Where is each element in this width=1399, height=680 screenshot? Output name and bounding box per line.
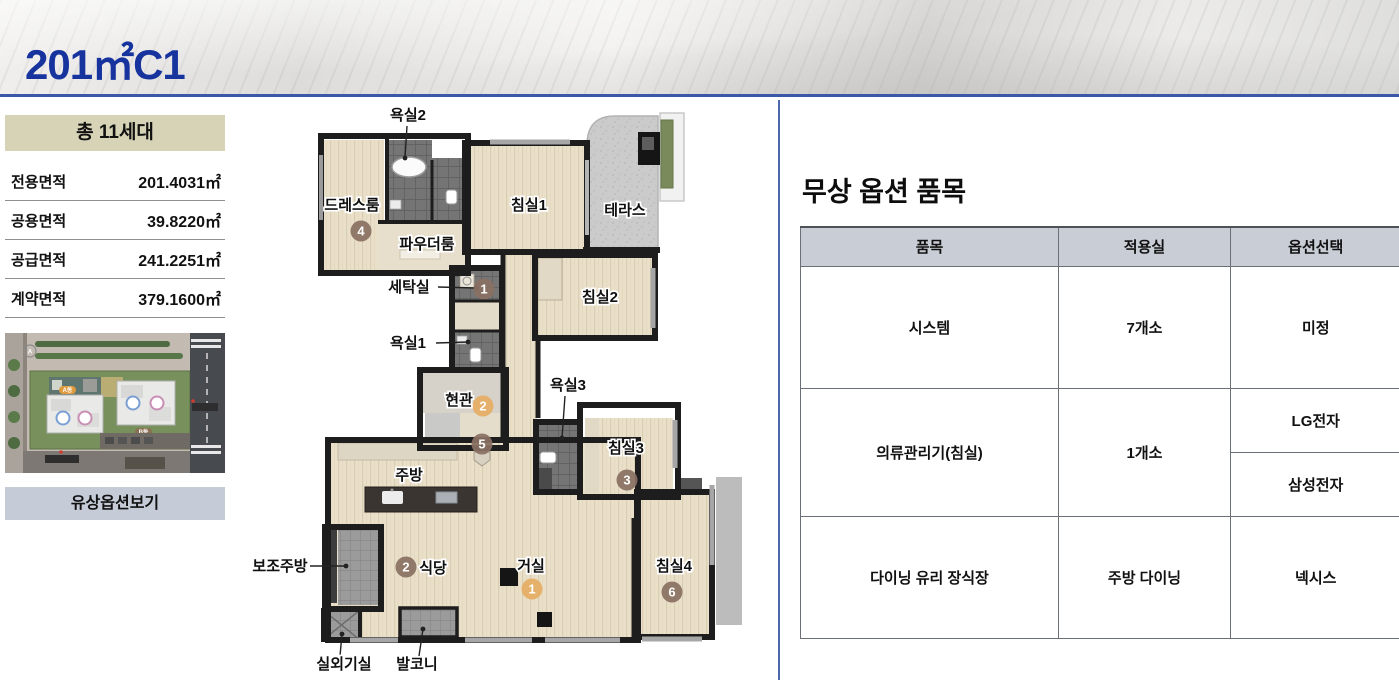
outer-balcony-strip [716,477,742,625]
room-label: 발코니 [396,656,437,673]
room-label: 실외기실 [316,655,371,673]
choice-cell: 넥시스 [1231,516,1399,638]
room-label: 파우더룸 [399,236,454,253]
room-label: 주방 [395,466,423,484]
area-value: 379.1600㎡ [138,286,221,310]
choice-cell: LG전자 [1231,388,1399,452]
choice-cell: 미정 [1231,266,1399,388]
choice-cell: 삼성전자 [1231,452,1399,516]
area-table: 전용면적 201.4031㎡ 공용면적 39.8220㎡ 공급면적 241.22… [5,162,225,318]
content: 총 11세대 전용면적 201.4031㎡ 공용면적 39.8220㎡ 공급면적… [0,100,1399,680]
site-plan-image: A [5,333,225,473]
area-row: 공급면적 241.2251㎡ [5,240,225,279]
room-cell: 1개소 [1059,388,1231,516]
options-table: 품목 적용실 옵션선택 시스템 7개소 미정 의류관리기(침실) 1개소 LG전… [800,226,1399,639]
floor-plan: 14252136 욕실2드레스룸파우더룸침실1테라스세탁실침실2욕실1현관욕실3… [250,100,780,680]
svg-text:6: 6 [668,585,675,600]
utility-floor [455,301,500,331]
area-row: 계약면적 379.1600㎡ [5,279,225,318]
sidebar: 총 11세대 전용면적 201.4031㎡ 공용면적 39.8220㎡ 공급면적… [5,100,225,680]
room-label: 테라스 [604,202,646,219]
room-label: 욕실1 [390,335,426,352]
room-label: 식당 [419,559,447,577]
area-value: 201.4031㎡ [138,169,221,193]
room-label: 침실2 [582,289,618,306]
room-label: 침실4 [656,558,693,575]
area-label: 계약면적 [11,288,66,309]
area-label: 공용면적 [11,210,66,231]
svg-text:1: 1 [528,582,535,597]
bath3-toilet [540,452,556,463]
col-room: 적용실 [1059,227,1231,266]
paid-options-button[interactable]: 유상옵션보기 [5,487,225,520]
site-plan-marker-a: A [28,350,33,356]
wc2-toilet [446,190,457,204]
bath1-toilet [470,348,481,362]
living-pillar [500,568,518,586]
kitchen-sink [382,491,403,504]
table-row: 다이닝 유리 장식장 주방 다이닝 넥시스 [801,516,1399,638]
page: 201㎡C1 총 11세대 전용면적 201.4031㎡ 공용면적 39.822… [0,0,1399,680]
bath2-floor [387,140,432,222]
page-title: 201㎡C1 [25,44,185,86]
vertical-divider [778,100,780,680]
room-label: 침실3 [608,440,644,457]
area-row: 공용면적 39.8220㎡ [5,201,225,240]
room-label: 욕실3 [550,377,586,394]
svg-text:4: 4 [357,224,365,239]
room-label: 침실1 [511,197,547,214]
room-label: 욕실2 [390,107,426,124]
bath2-sink [390,200,401,209]
terrace-planting [661,120,673,188]
room-label: 현관 [445,392,473,409]
floor-plan-image: 14252136 욕실2드레스룸파우더룸침실1테라스세탁실침실2욕실1현관욕실3… [250,100,780,680]
svg-text:1: 1 [480,282,487,297]
area-row: 전용면적 201.4031㎡ [5,162,225,201]
col-choice: 옵션선택 [1231,227,1399,266]
room-label: 보조주방 [252,557,307,575]
table-row: 시스템 7개소 미정 [801,266,1399,388]
item-cell: 시스템 [801,266,1059,388]
svg-text:2: 2 [402,560,409,575]
page-header: 201㎡C1 [0,0,1399,97]
area-value: 39.8220㎡ [147,208,221,232]
washer [460,274,474,288]
table-row: 의류관리기(침실) 1개소 LG전자 [801,388,1399,452]
room-label: 드레스룸 [324,197,379,214]
col-item: 품목 [801,227,1059,266]
room-cell: 7개소 [1059,266,1231,388]
item-cell: 다이닝 유리 장식장 [801,516,1059,638]
room-label: 세탁실 [388,278,429,296]
badge-a: A동 [63,386,73,394]
kitchen-island [365,487,477,512]
building-right [117,381,175,425]
options-panel: 무상 옵션 품목 품목 적용실 옵션선택 시스템 7개소 미정 [800,100,1399,680]
building-left [47,395,103,433]
bathtub [392,157,426,177]
total-units-banner: 총 11세대 [5,115,225,151]
room-cell: 주방 다이닝 [1059,516,1231,638]
cooktop [436,492,457,503]
bedroom2-closet [538,258,562,300]
svg-text:5: 5 [478,437,485,452]
options-heading: 무상 옵션 품목 [802,170,1399,209]
balcony-floor [400,608,457,637]
area-label: 전용면적 [11,171,66,192]
entry-porch [425,413,460,437]
room-label: 거실 [517,558,545,575]
bedroom3-closet [585,418,599,493]
svg-text:3: 3 [623,473,630,488]
area-label: 공급면적 [11,249,66,270]
item-cell: 의류관리기(침실) [801,388,1059,516]
area-value: 241.2251㎡ [138,247,221,271]
svg-text:2: 2 [479,399,486,414]
